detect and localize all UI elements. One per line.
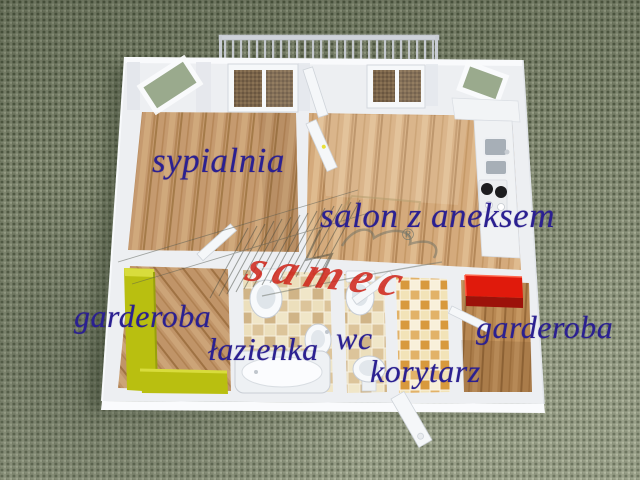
floorplan-render (0, 0, 640, 480)
kitchen-sink (484, 138, 510, 175)
scene-stage: sypialnia salon z aneksem garderoba łazi… (0, 0, 640, 480)
room-label-garderoba-left: garderoba (74, 300, 211, 332)
salon-floor-highlight (318, 114, 468, 205)
salon-twin-window (367, 65, 425, 108)
room-label-garderoba-right: garderoba (476, 311, 613, 343)
red-cabinet (465, 275, 523, 308)
room-label-lazienka: łazienka (208, 333, 319, 365)
registered-trademark-symbol: ® (400, 227, 416, 243)
room-label-sypialnia: sypialnia (152, 143, 285, 178)
room-label-wc: wc (336, 322, 373, 354)
room-label-korytarz: korytarz (370, 355, 481, 387)
room-label-salon: salon z aneksem (320, 198, 555, 233)
sypialnia-twin-window (228, 64, 298, 112)
